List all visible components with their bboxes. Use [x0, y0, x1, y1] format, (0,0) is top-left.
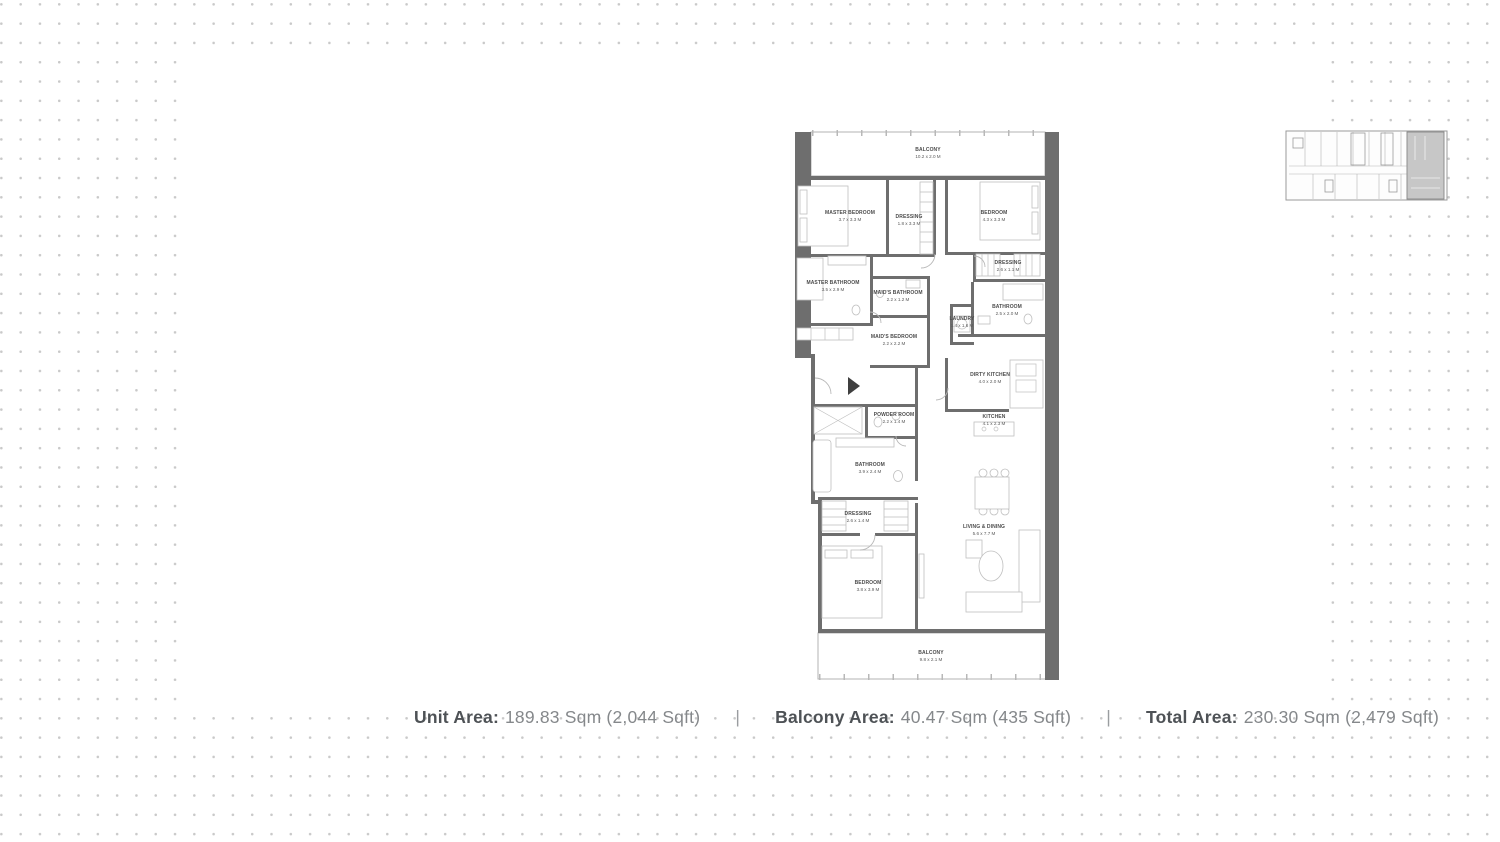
room-label-bedroom-bottom: BEDROOM: [855, 580, 882, 586]
room-label-maids-bathroom: MAID'S BATHROOM: [873, 290, 922, 296]
balcony-bottom-outline: [818, 633, 1046, 679]
balcony-area: Balcony Area:40.47 Sqm (435 Sqft): [775, 707, 1071, 727]
separator: |: [1106, 707, 1111, 727]
floor-plan: BALCONY 10.2 x 2.0 M MASTER BEDROOM 3.7 …: [778, 126, 1078, 686]
entrance-arrow-icon: [848, 377, 860, 395]
room-label-bedroom-top: BEDROOM: [981, 210, 1008, 216]
unit-area-value: 189.83 Sqm (2,044 Sqft): [505, 707, 700, 727]
furniture: [797, 182, 1043, 618]
svg-text:2.2 x 1.2 M: 2.2 x 1.2 M: [887, 297, 910, 302]
svg-text:9.8 x 2.1 M: 9.8 x 2.1 M: [920, 657, 943, 662]
svg-text:2.5 x 2.0 M: 2.5 x 2.0 M: [996, 311, 1019, 316]
room-label-master-bathroom: MASTER BATHROOM: [806, 280, 859, 286]
separator: |: [735, 707, 740, 727]
room-label-master-bedroom: MASTER BEDROOM: [825, 210, 875, 216]
unit-area-label: Unit Area:: [414, 707, 499, 727]
room-label-kitchen: KITCHEN: [983, 414, 1006, 420]
room-label-living-dining: LIVING & DINING: [963, 524, 1005, 530]
svg-text:3.5 x 2.9 M: 3.5 x 2.9 M: [822, 287, 845, 292]
room-label-maids-bedroom: MAID'S BEDROOM: [871, 334, 917, 340]
svg-text:3.8 x 3.9 M: 3.8 x 3.9 M: [857, 587, 880, 592]
room-label-dressing-bottom: DRESSING: [845, 511, 872, 517]
svg-text:10.2 x 2.0 M: 10.2 x 2.0 M: [915, 154, 940, 159]
plan-canvas: BALCONY 10.2 x 2.0 M MASTER BEDROOM 3.7 …: [178, 48, 1319, 711]
svg-text:3.9 x 2.4 M: 3.9 x 2.4 M: [859, 469, 882, 474]
svg-text:1.8 x 3.3 M: 1.8 x 3.3 M: [898, 221, 921, 226]
page-background: BALCONY 10.2 x 2.0 M MASTER BEDROOM 3.7 …: [0, 0, 1500, 842]
svg-text:2.2 x 1.4 M: 2.2 x 1.4 M: [883, 419, 906, 424]
svg-text:2.6 x 1.4 M: 2.6 x 1.4 M: [847, 518, 870, 523]
room-label-dressing-master: DRESSING: [896, 214, 923, 220]
svg-text:2.2 x 2.2 M: 2.2 x 2.2 M: [883, 341, 906, 346]
room-label-balcony-top: BALCONY: [915, 147, 941, 153]
key-plan-highlight: [1407, 132, 1444, 199]
room-label-bathroom-center: BATHROOM: [855, 462, 885, 468]
svg-text:5.6 x 7.7 M: 5.6 x 7.7 M: [973, 531, 996, 536]
room-label-laundry: LAUNDRY: [950, 316, 976, 322]
area-summary: Unit Area:189.83 Sqm (2,044 Sqft) | Balc…: [356, 700, 1497, 734]
total-area-label: Total Area:: [1146, 707, 1238, 727]
unit-area: Unit Area:189.83 Sqm (2,044 Sqft): [414, 707, 700, 727]
room-label-powder-room: POWDER ROOM: [874, 412, 915, 418]
svg-text:3.7 x 3.3 M: 3.7 x 3.3 M: [839, 217, 862, 222]
svg-text:1.4 x 1.6 M: 1.4 x 1.6 M: [951, 323, 974, 328]
svg-text:4.3 x 3.3 M: 4.3 x 3.3 M: [983, 217, 1006, 222]
balcony-area-label: Balcony Area:: [775, 707, 895, 727]
balcony-area-value: 40.47 Sqm (435 Sqft): [901, 707, 1071, 727]
room-label-bathroom-right: BATHROOM: [992, 304, 1022, 310]
svg-text:4.0 x 2.0 M: 4.0 x 2.0 M: [979, 379, 1002, 384]
total-area-value: 230.30 Sqm (2,479 Sqft): [1244, 707, 1439, 727]
room-label-dressing-right: DRESSING: [995, 260, 1022, 266]
total-area: Total Area:230.30 Sqm (2,479 Sqft): [1146, 707, 1439, 727]
key-plan: [1285, 130, 1448, 201]
svg-text:2.6 x 1.1 M: 2.6 x 1.1 M: [997, 267, 1020, 272]
room-label-dirty-kitchen: DIRTY KITCHEN: [970, 372, 1010, 378]
svg-text:4.1 x 2.3 M: 4.1 x 2.3 M: [983, 421, 1006, 426]
room-label-balcony-bottom: BALCONY: [918, 650, 944, 656]
